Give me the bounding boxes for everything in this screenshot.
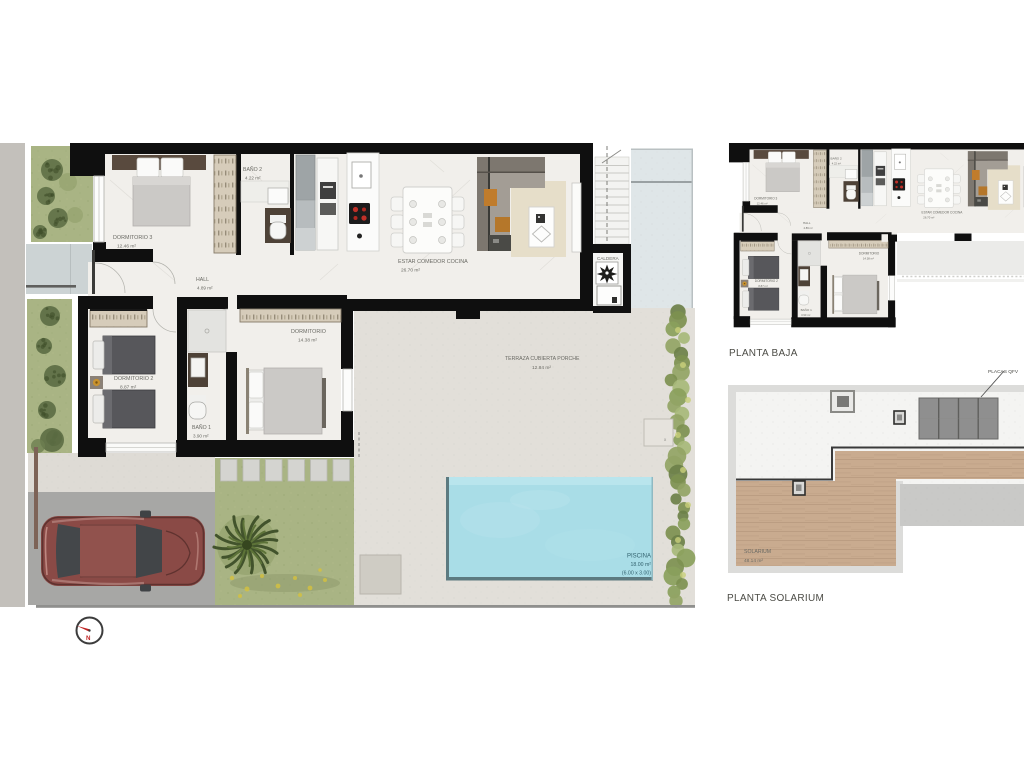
svg-text:SOLARIUM: SOLARIUM: [744, 549, 771, 555]
svg-text:12.84 m²: 12.84 m²: [532, 365, 551, 371]
svg-text:PLANTA BAJA: PLANTA BAJA: [729, 348, 798, 359]
svg-text:PISCINA: PISCINA: [627, 554, 651, 560]
svg-text:48.14 m²: 48.14 m²: [744, 558, 763, 564]
svg-text:TERRAZA CUBIERTA PORCHE: TERRAZA CUBIERTA PORCHE: [505, 356, 580, 362]
svg-text:PLACAS QFV: PLACAS QFV: [988, 369, 1019, 375]
svg-text:N: N: [86, 635, 91, 642]
svg-text:PLANTA SOLARIUM: PLANTA SOLARIUM: [727, 593, 824, 604]
svg-text:18.00 m²: 18.00 m²: [631, 562, 652, 568]
svg-text:(6.00 x 3.00): (6.00 x 3.00): [622, 571, 651, 577]
